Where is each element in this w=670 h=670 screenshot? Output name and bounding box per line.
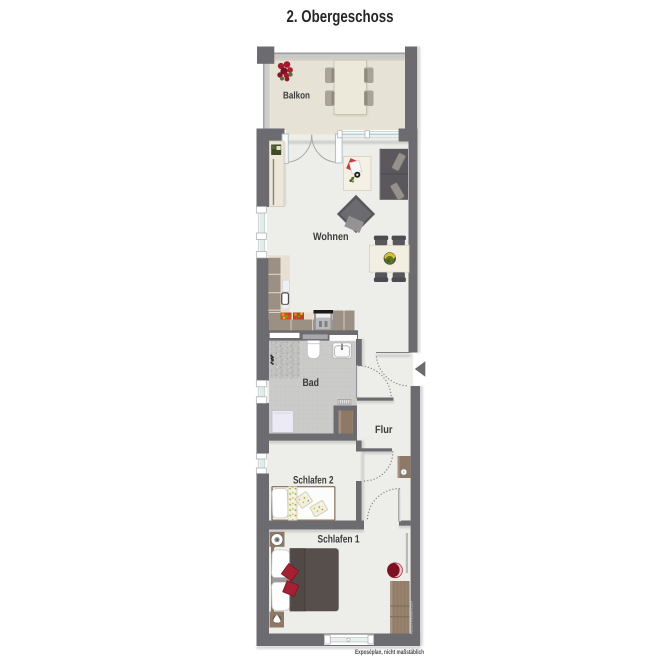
svg-text:Schlafen 2: Schlafen 2 xyxy=(293,475,334,487)
svg-text:Flur: Flur xyxy=(375,424,393,436)
svg-text:Wohnen: Wohnen xyxy=(313,231,349,243)
svg-text:Exposéplan, nicht maßstäblich: Exposéplan, nicht maßstäblich xyxy=(355,649,424,656)
svg-text:2. Obergeschoss: 2. Obergeschoss xyxy=(287,7,394,26)
svg-text:Balkon: Balkon xyxy=(283,91,310,102)
svg-text:Schlafen 1: Schlafen 1 xyxy=(318,534,360,546)
svg-text:Illustration ImmobilienScout24: Illustration ImmobilienScout24 xyxy=(410,601,414,634)
svg-text:Bad: Bad xyxy=(303,377,320,389)
